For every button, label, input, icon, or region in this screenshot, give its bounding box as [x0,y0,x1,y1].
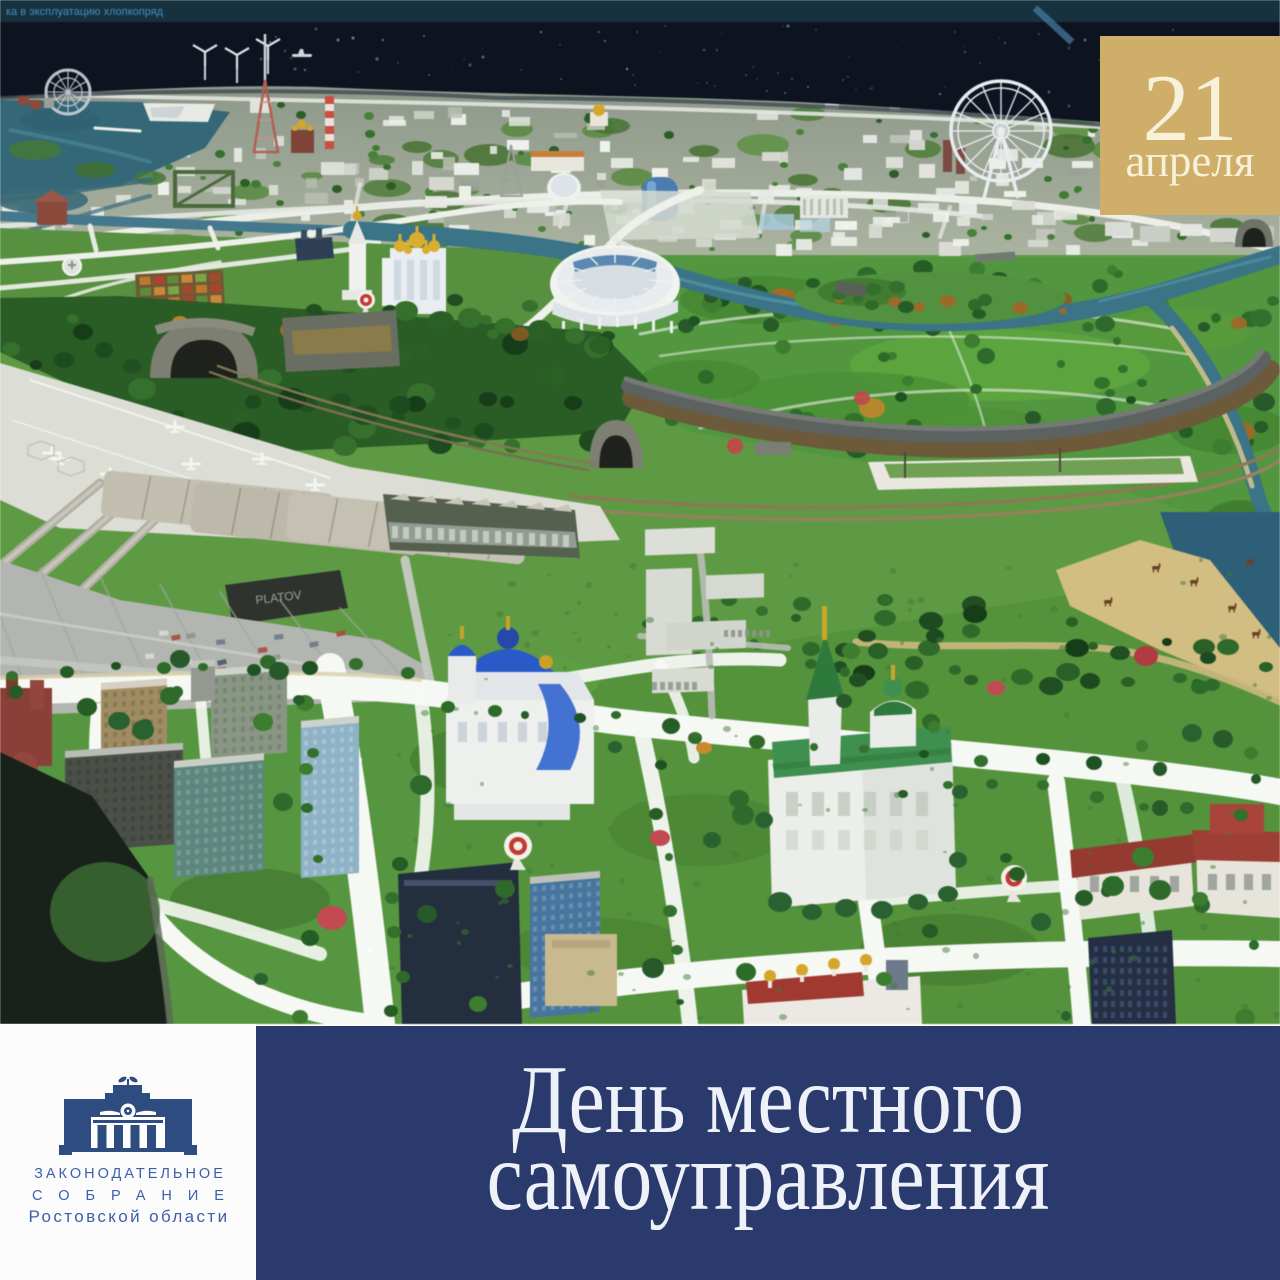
svg-text:Ростовской области: Ростовской области [28,1207,229,1226]
svg-text:ЗАКОНОДАТЕЛЬНОЕ: ЗАКОНОДАТЕЛЬНОЕ [34,1166,226,1182]
svg-text:СОБРАНИЕ: СОБРАНИЕ [32,1188,240,1204]
svg-text:ка в эксплуатацию хлопкопряд: ка в эксплуатацию хлопкопряд [6,6,164,18]
